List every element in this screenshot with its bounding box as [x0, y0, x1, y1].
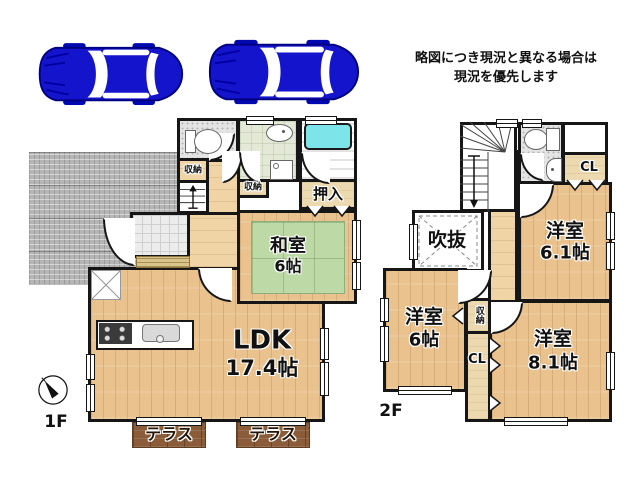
door-swing-mark: [452, 307, 464, 325]
window: [606, 242, 615, 270]
bifold-door-mark: [489, 337, 501, 355]
window: [86, 354, 95, 380]
yoshitsu6-label: 洋室: [405, 308, 443, 328]
floor1-label: 1F: [44, 414, 67, 432]
balcony-void-space: [562, 122, 608, 155]
closet-label: CL: [580, 161, 598, 175]
terrace-label: テラス: [145, 427, 193, 444]
compass-icon: [37, 374, 69, 406]
bifold-door-mark: [566, 179, 584, 191]
bifold-door-mark: [489, 356, 501, 374]
car-icon: [205, 38, 361, 106]
bifold-door-mark: [306, 205, 324, 217]
bifold-door-mark: [489, 394, 501, 412]
window: [504, 417, 568, 426]
sink-faucet-dot: [156, 335, 164, 343]
window: [380, 298, 389, 322]
yoshitsu6-size-label: 6帖: [409, 332, 440, 351]
window: [380, 326, 389, 362]
disclaimer-line2: 現況を優先します: [390, 69, 622, 88]
disclaimer-note: 略図につき現況と異なる場合は 現況を優先します: [390, 50, 622, 88]
window: [352, 220, 361, 260]
washitsu-size-label: 6帖: [274, 259, 301, 276]
toilet-bowl-icon: [524, 129, 548, 150]
washbasin-faucet-dot: [282, 130, 285, 133]
disclaimer-line1: 略図につき現況と異なる場合は: [390, 50, 622, 69]
yoshitsu81-size-label: 8.1帖: [528, 355, 578, 374]
stairs-1f-arrow: [179, 182, 207, 212]
toilet-tank-icon: [546, 128, 560, 151]
window: [320, 362, 329, 396]
terrace-label: テラス: [249, 427, 297, 444]
washbasin-dot: [551, 168, 554, 171]
void-label: 吹抜: [428, 231, 466, 251]
stairs-2f-steps: [460, 122, 517, 212]
washitsu-label: 和室: [270, 238, 306, 257]
storage-label: 収納: [244, 183, 262, 192]
bifold-door-mark: [333, 205, 351, 217]
corridor-1f: [188, 212, 240, 270]
yoshitsu61-label: 洋室: [546, 222, 584, 242]
ldk-label: LDK: [233, 327, 291, 354]
oshiire-label: 押入: [313, 187, 343, 203]
storage-label: 収納: [184, 166, 202, 175]
floor2-label: 2F: [379, 403, 402, 421]
ldk-size-label: 17.4帖: [226, 357, 299, 379]
yoshitsu81-label: 洋室: [534, 330, 572, 350]
washbasin-icon-2f: [546, 158, 562, 182]
washbasin-icon-1f: [266, 124, 293, 142]
window: [606, 352, 615, 390]
window: [352, 262, 361, 290]
storage-2f-label: 収納: [473, 306, 482, 324]
washing-machine-dot: [273, 163, 279, 169]
genkan-entrance: [130, 212, 190, 258]
entrance-storage-xbox: [91, 270, 121, 300]
floor-plan-page: 略図につき現況と異なる場合は 現況を優先します: [0, 0, 640, 480]
car-icon: [35, 42, 185, 106]
yoshitsu61-size-label: 6.1帖: [540, 245, 590, 264]
bifold-door-mark: [588, 179, 606, 191]
toilet-bowl-icon: [194, 129, 222, 154]
window: [305, 116, 337, 125]
window: [606, 212, 615, 240]
window: [86, 384, 95, 412]
window: [496, 119, 518, 128]
window: [522, 119, 542, 128]
window: [398, 386, 452, 395]
bathtub-icon: [304, 123, 352, 150]
window: [246, 116, 274, 125]
genkan-step: [136, 256, 190, 268]
closet-cl-mid: [465, 331, 491, 422]
stove-icon: [99, 323, 132, 344]
window: [409, 224, 418, 260]
window: [320, 328, 329, 360]
closet-label: CL: [468, 353, 486, 367]
